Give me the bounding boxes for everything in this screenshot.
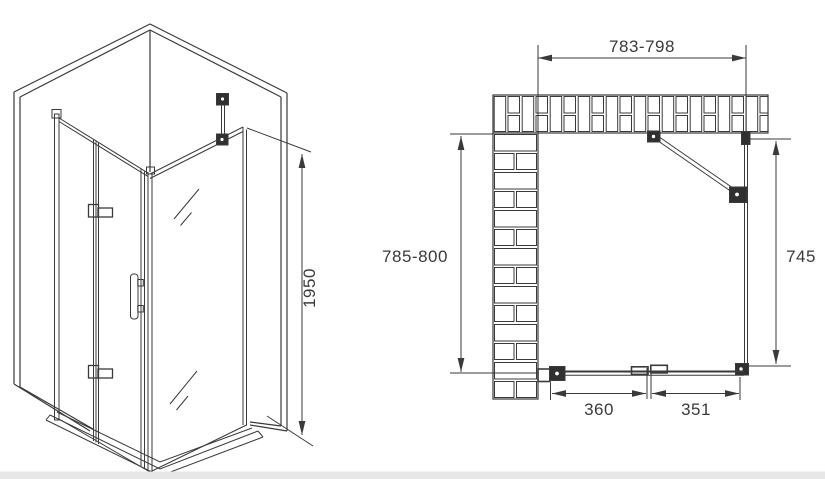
- side-panel-dimension: 745: [749, 139, 816, 366]
- door-segment-left-label: 360: [584, 400, 614, 419]
- glass-reflection-marks: [170, 189, 199, 410]
- support-brace-plan: [648, 131, 747, 203]
- iso-view: 1950: [14, 24, 319, 476]
- top-support-bar: [217, 94, 229, 146]
- support-brace-rod: [656, 137, 738, 195]
- handle-bar: [131, 274, 139, 319]
- bracket-screw: [221, 97, 224, 100]
- side-panel-wall-clamp: [742, 132, 751, 145]
- fixed-side-panel: [150, 94, 247, 473]
- door-plan: 360 351: [538, 365, 744, 419]
- page-edge-strip: [0, 472, 825, 479]
- hinge-block: [98, 369, 113, 378]
- side-panel-dimension-label: 745: [786, 247, 816, 266]
- width-dimension-label: 783-798: [609, 37, 675, 56]
- side-panel-glass-lines: [745, 133, 748, 371]
- door-segment-extension-lines: [551, 368, 741, 400]
- shower-tray: [46, 412, 263, 476]
- clamp-screw: [220, 138, 223, 141]
- bifold-door: [52, 110, 155, 474]
- support-bar-rod: [222, 105, 225, 136]
- shower-enclosure-technical-drawing: 1950 783-798 785-800 745: [0, 0, 825, 479]
- brick-wall-top: [493, 95, 768, 133]
- hinge-block: [98, 208, 113, 217]
- height-dimension: 1950: [247, 128, 319, 446]
- side-panel-plan: [736, 132, 751, 376]
- door-clamp-screw: [555, 372, 559, 376]
- plan-view: 783-798 785-800 745: [382, 37, 816, 419]
- door-wall-bracket: [538, 369, 550, 382]
- door-hinge-top: [89, 205, 113, 218]
- depth-dimension-label: 785-800: [382, 247, 448, 266]
- door-wall-profile: [55, 114, 60, 420]
- door-segment-right-label: 351: [681, 400, 711, 419]
- height-dimension-label: 1950: [300, 268, 319, 308]
- drawing-canvas: 1950 783-798 785-800 745: [0, 0, 825, 479]
- corner-connector-screw: [739, 367, 742, 370]
- brick-wall-left: [493, 133, 538, 399]
- side-panel-edges: [150, 127, 247, 472]
- brace-anchor-screw: [652, 135, 655, 138]
- door-glass-edges: [59, 118, 150, 472]
- brace-bracket-screw: [735, 193, 739, 197]
- door-hinge-bottom: [89, 366, 113, 379]
- side-panel-dimension-extension-lines: [749, 139, 791, 366]
